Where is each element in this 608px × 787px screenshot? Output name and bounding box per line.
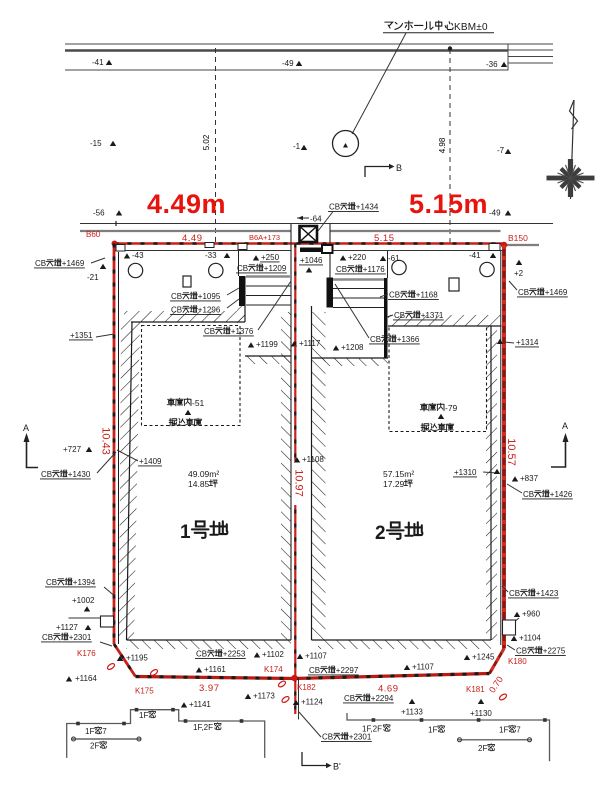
- svg-text:K176: K176: [77, 649, 96, 658]
- svg-text:B60: B60: [86, 230, 101, 239]
- svg-text:CB: CB: [509, 589, 520, 598]
- svg-text:+2275: +2275: [543, 647, 566, 656]
- svg-text:CB: CB: [35, 259, 46, 268]
- svg-text:+2301: +2301: [69, 633, 92, 642]
- svg-text:+1426: +1426: [550, 490, 573, 499]
- svg-text:+1199: +1199: [256, 340, 278, 349]
- svg-text:+1469: +1469: [545, 288, 568, 297]
- svg-text:+1046: +1046: [300, 256, 323, 265]
- svg-text:4.49: 4.49: [182, 233, 203, 244]
- svg-text:+1124: +1124: [301, 698, 323, 707]
- svg-text:7: 7: [102, 727, 107, 736]
- svg-text:-1: -1: [293, 142, 301, 151]
- svg-text:CB: CB: [41, 470, 52, 479]
- svg-text:CB: CB: [370, 335, 381, 344]
- svg-text:+1133: +1133: [401, 708, 423, 717]
- svg-text:-51: -51: [192, 398, 205, 408]
- svg-text:KBM±0: KBM±0: [454, 22, 488, 33]
- svg-text:+837: +837: [520, 474, 539, 483]
- svg-text:-41: -41: [469, 251, 481, 260]
- svg-text:+2301: +2301: [349, 733, 372, 742]
- svg-text:K182: K182: [297, 683, 316, 692]
- svg-text:+1314: +1314: [516, 338, 539, 347]
- svg-text:+1107: +1107: [412, 663, 434, 672]
- svg-text:+1376: +1376: [231, 327, 254, 336]
- svg-text:-33: -33: [205, 251, 217, 260]
- svg-text:-64: -64: [310, 215, 322, 224]
- svg-text:CB: CB: [204, 327, 215, 336]
- svg-text:3.97: 3.97: [199, 683, 220, 694]
- svg-text:-43: -43: [132, 251, 144, 260]
- svg-text:CB: CB: [171, 292, 182, 301]
- svg-text:1F: 1F: [85, 727, 94, 736]
- svg-text:+1310: +1310: [454, 468, 477, 477]
- svg-text:+1409: +1409: [139, 457, 162, 466]
- svg-text:+1168: +1168: [416, 291, 438, 300]
- svg-text:CB: CB: [336, 265, 347, 274]
- svg-text:K180: K180: [508, 657, 527, 666]
- svg-text:CB: CB: [196, 650, 207, 659]
- svg-text:-15: -15: [90, 139, 102, 148]
- svg-text:+1209: +1209: [264, 264, 287, 273]
- svg-text:-21: -21: [87, 273, 99, 282]
- svg-text:1F: 1F: [428, 726, 437, 735]
- svg-text:CB: CB: [329, 203, 340, 212]
- svg-text:CB: CB: [523, 490, 534, 499]
- svg-text:+727: +727: [63, 445, 82, 454]
- svg-text:5.15m: 5.15m: [409, 189, 488, 219]
- svg-text:B: B: [396, 163, 402, 173]
- svg-text:CB: CB: [516, 647, 527, 656]
- svg-text:+1102: +1102: [262, 650, 284, 659]
- svg-text:49.09m²: 49.09m²: [188, 469, 219, 479]
- svg-text:-49: -49: [489, 209, 501, 218]
- svg-text:+220: +220: [348, 253, 367, 262]
- svg-text:CB: CB: [389, 291, 400, 300]
- svg-text:-79: -79: [445, 403, 458, 413]
- svg-text:K181: K181: [466, 685, 485, 694]
- svg-text:57.15m²: 57.15m²: [383, 469, 414, 479]
- svg-text:10.57: 10.57: [505, 438, 517, 466]
- svg-text:+2253: +2253: [223, 650, 246, 659]
- svg-text:+1107: +1107: [305, 652, 327, 661]
- svg-text:2F: 2F: [90, 742, 99, 751]
- svg-text:+1366: +1366: [397, 335, 420, 344]
- svg-text:4.49m: 4.49m: [147, 189, 226, 219]
- svg-text:+1161: +1161: [204, 665, 226, 674]
- svg-text:+1423: +1423: [536, 589, 559, 598]
- svg-text:2: 2: [375, 523, 386, 544]
- svg-text:10.43: 10.43: [100, 427, 112, 455]
- svg-text:4.98: 4.98: [438, 137, 447, 153]
- svg-text:+1394: +1394: [73, 578, 96, 587]
- svg-text:CB: CB: [42, 633, 53, 642]
- svg-text:-56: -56: [93, 209, 105, 218]
- svg-text:1F,2F: 1F,2F: [362, 725, 382, 734]
- svg-text:2F: 2F: [478, 744, 487, 753]
- svg-text:+1130: +1130: [470, 709, 492, 718]
- svg-text:A: A: [23, 423, 29, 433]
- svg-text:+1108: +1108: [302, 455, 324, 464]
- svg-text:CB: CB: [344, 694, 355, 703]
- svg-text:A: A: [562, 421, 568, 431]
- svg-text:B150: B150: [508, 233, 528, 243]
- svg-text:+1164: +1164: [75, 674, 97, 683]
- svg-text:-61: -61: [388, 254, 400, 263]
- svg-text:-7: -7: [497, 146, 505, 155]
- svg-text:1F: 1F: [499, 726, 508, 735]
- svg-text:CB: CB: [237, 264, 248, 273]
- svg-text:1F: 1F: [139, 711, 148, 720]
- svg-text:+960: +960: [522, 610, 541, 619]
- svg-text:1F,2F: 1F,2F: [193, 723, 213, 732]
- svg-text:CB: CB: [518, 288, 529, 297]
- svg-text:10.97: 10.97: [292, 469, 304, 497]
- svg-text:+1141: +1141: [189, 700, 211, 709]
- svg-text:+1095: +1095: [198, 292, 221, 301]
- svg-text:4.69: 4.69: [378, 684, 399, 695]
- svg-text:1: 1: [180, 522, 191, 543]
- svg-text:5.02: 5.02: [202, 134, 211, 150]
- svg-text:+2294: +2294: [371, 694, 394, 703]
- svg-text:+1245: +1245: [472, 653, 495, 662]
- svg-text:+1469: +1469: [62, 259, 85, 268]
- svg-text:+1351: +1351: [70, 331, 93, 340]
- svg-text:+1173: +1173: [253, 692, 275, 701]
- svg-text:+1176: +1176: [363, 265, 385, 274]
- svg-text:K174: K174: [264, 665, 283, 674]
- svg-text:+2297: +2297: [336, 666, 359, 675]
- svg-text:-49: -49: [282, 59, 294, 68]
- svg-text:14.85: 14.85: [188, 479, 210, 489]
- svg-text:K175: K175: [135, 687, 154, 696]
- svg-text:+2: +2: [514, 269, 524, 278]
- svg-text:CB: CB: [322, 733, 333, 742]
- svg-text:5.15: 5.15: [374, 233, 395, 244]
- svg-text:CB: CB: [46, 578, 57, 587]
- svg-text:+1434: +1434: [356, 203, 379, 212]
- svg-text:+1002: +1002: [72, 596, 95, 605]
- svg-text:+1208: +1208: [341, 343, 364, 352]
- svg-text:-36: -36: [486, 60, 498, 69]
- svg-text:+1430: +1430: [68, 470, 91, 479]
- svg-text:17.29: 17.29: [383, 479, 405, 489]
- svg-text:+1195: +1195: [126, 654, 148, 663]
- svg-text:7: 7: [516, 726, 521, 735]
- svg-text:+1104: +1104: [519, 634, 541, 643]
- svg-text:B6A+173: B6A+173: [249, 233, 280, 242]
- svg-text:CB: CB: [309, 666, 320, 675]
- svg-text:+250: +250: [261, 253, 280, 262]
- svg-text:B': B': [333, 762, 341, 772]
- svg-text:+1127: +1127: [56, 623, 78, 632]
- svg-text:-41: -41: [92, 58, 104, 67]
